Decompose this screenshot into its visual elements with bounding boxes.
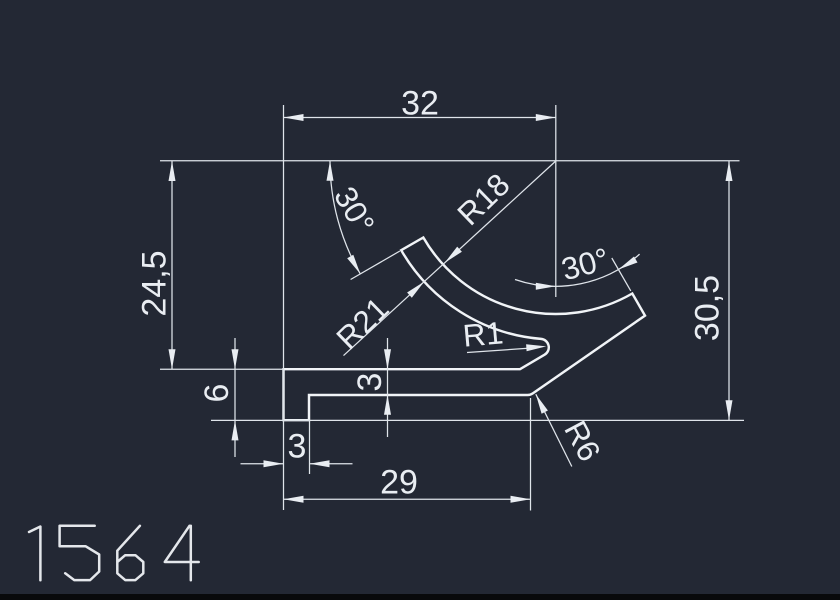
svg-text:R21: R21 xyxy=(329,290,396,356)
svg-text:R6: R6 xyxy=(557,415,608,467)
svg-text:30°: 30° xyxy=(557,240,612,287)
svg-text:29: 29 xyxy=(380,464,418,502)
svg-text:24,5: 24,5 xyxy=(136,250,174,316)
svg-text:3: 3 xyxy=(351,373,389,392)
svg-text:30,5: 30,5 xyxy=(689,275,727,341)
svg-text:30°: 30° xyxy=(327,180,382,239)
svg-text:6: 6 xyxy=(198,384,236,403)
svg-text:3: 3 xyxy=(288,428,307,466)
svg-text:32: 32 xyxy=(401,85,439,123)
svg-text:R1: R1 xyxy=(461,314,504,353)
svg-text:R18: R18 xyxy=(450,166,517,232)
